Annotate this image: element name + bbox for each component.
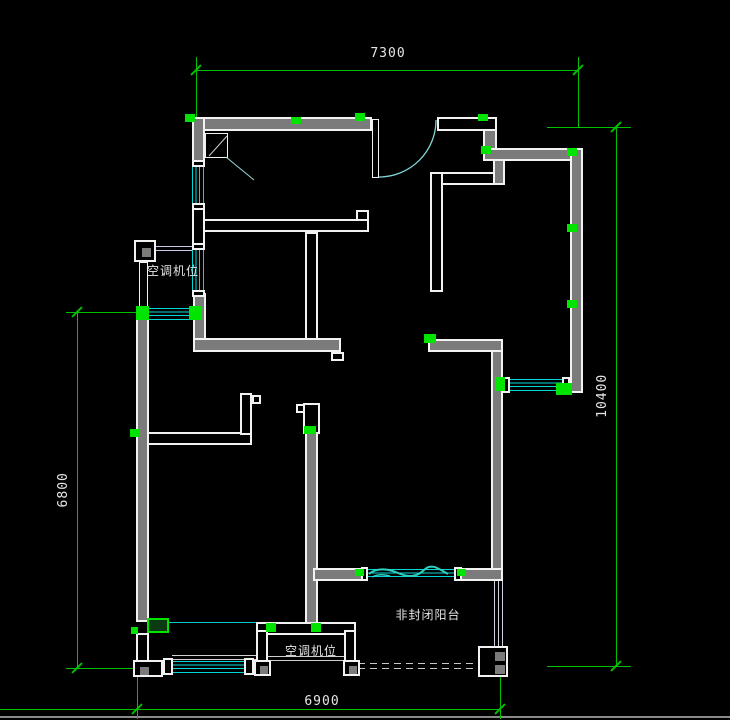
left-wall-bottom[interactable] xyxy=(136,633,149,662)
selection-grip[interactable] xyxy=(567,300,577,308)
railing-line xyxy=(0,716,730,718)
selection-grip[interactable] xyxy=(556,383,572,395)
kitchen-wall-vertical[interactable] xyxy=(430,172,443,292)
label-ac-unit-top: 空调机位 xyxy=(144,264,202,278)
kitchen-wall-connector[interactable] xyxy=(493,159,505,185)
dimension-line xyxy=(196,70,579,71)
selection-grip[interactable] xyxy=(189,306,202,320)
acbox-post-left[interactable] xyxy=(254,660,271,676)
hall-wall-cap[interactable] xyxy=(356,210,369,221)
railing-line xyxy=(502,580,503,647)
closet-symbol[interactable] xyxy=(205,133,228,158)
ac-platform-box[interactable] xyxy=(134,240,156,262)
window[interactable] xyxy=(367,569,455,580)
dim-top-label: 7300 xyxy=(358,46,418,62)
acbox-right-wall[interactable] xyxy=(344,630,356,664)
door-swing-overlay xyxy=(0,0,730,720)
dimension-line xyxy=(500,677,501,719)
selection-grip[interactable] xyxy=(481,146,491,154)
selection-grip[interactable] xyxy=(130,429,140,437)
dimension-line xyxy=(547,127,631,128)
label-ac-unit-bottom: 空调机位 xyxy=(282,644,340,658)
left-wall-upper[interactable] xyxy=(192,117,205,165)
dim-right-label: 10400 xyxy=(595,365,611,427)
window[interactable] xyxy=(508,379,563,392)
hall-wall-horizontal[interactable] xyxy=(203,219,369,232)
cad-floorplan-canvas[interactable]: 7300 10400 6800 6900 空调机位 空调机位 非封闭阳台 xyxy=(0,0,730,720)
right-exterior-wall[interactable] xyxy=(570,148,583,393)
selection-grip[interactable] xyxy=(291,117,301,124)
dim-bottom-label: 6900 xyxy=(292,694,352,710)
dimension-line xyxy=(547,666,631,667)
selection-grip[interactable] xyxy=(185,114,195,122)
railing-line xyxy=(268,660,344,661)
acbox-post-right[interactable] xyxy=(343,660,360,676)
post-core xyxy=(140,667,149,675)
window-cap[interactable] xyxy=(163,658,173,675)
window-cap[interactable] xyxy=(244,658,254,675)
window[interactable] xyxy=(149,308,192,320)
railing-line xyxy=(172,655,256,656)
dimension-line xyxy=(0,709,501,710)
railing-line xyxy=(358,663,479,664)
post-core xyxy=(142,248,151,257)
l-wall-stub[interactable] xyxy=(331,352,344,361)
window-cap[interactable] xyxy=(192,290,205,297)
post-core xyxy=(495,652,505,661)
dimension-line xyxy=(137,675,138,719)
bottom-mid-wall[interactable] xyxy=(305,432,318,635)
selection-grip-box[interactable] xyxy=(147,618,169,633)
railing-line xyxy=(494,580,495,647)
entry-door-swing-arc xyxy=(379,120,436,177)
post-core xyxy=(260,666,268,674)
dimension-line xyxy=(616,127,617,667)
top-wall-west[interactable] xyxy=(196,117,372,131)
closet-swing-line xyxy=(226,157,254,180)
railing-line xyxy=(498,580,499,647)
dim-left-label: 6800 xyxy=(56,460,72,520)
selection-grip[interactable] xyxy=(355,113,365,121)
window-cap[interactable] xyxy=(192,160,205,167)
l-wall-horizontal[interactable] xyxy=(193,338,341,352)
railing-line xyxy=(358,668,479,669)
window[interactable] xyxy=(192,165,205,205)
entry-door-leaf[interactable] xyxy=(372,119,379,178)
bedroom2-jamb-cap[interactable] xyxy=(252,395,261,404)
left-exterior-wall[interactable] xyxy=(136,310,149,622)
bottom-wall-notch[interactable] xyxy=(296,404,305,413)
selection-grip[interactable] xyxy=(266,623,276,632)
window-cap[interactable] xyxy=(192,243,205,250)
post-core xyxy=(495,665,505,674)
selection-grip[interactable] xyxy=(136,306,149,320)
window[interactable] xyxy=(172,661,245,673)
bedroom2-jamb[interactable] xyxy=(240,393,252,435)
balcony-post-se[interactable] xyxy=(478,646,508,677)
dimension-line xyxy=(77,312,78,669)
selection-grip[interactable] xyxy=(457,569,466,576)
selection-grip[interactable] xyxy=(355,569,364,576)
hall-wall-vertical[interactable] xyxy=(305,232,318,340)
post-core xyxy=(349,666,357,674)
selection-grip[interactable] xyxy=(478,114,488,121)
window-cap[interactable] xyxy=(192,203,205,210)
railing-line xyxy=(167,622,258,623)
selection-grip[interactable] xyxy=(131,627,138,634)
selection-grip[interactable] xyxy=(311,623,321,632)
selection-grip[interactable] xyxy=(304,426,316,434)
selection-grip[interactable] xyxy=(567,224,577,232)
label-balcony: 非封闭阳台 xyxy=(390,608,466,622)
selection-grip[interactable] xyxy=(495,377,505,391)
acbox-left-wall[interactable] xyxy=(256,630,268,664)
selection-grip[interactable] xyxy=(567,148,577,156)
corner-post-sw[interactable] xyxy=(133,660,163,677)
selection-grip[interactable] xyxy=(424,334,436,343)
bedroom2-top-wall[interactable] xyxy=(140,432,252,445)
